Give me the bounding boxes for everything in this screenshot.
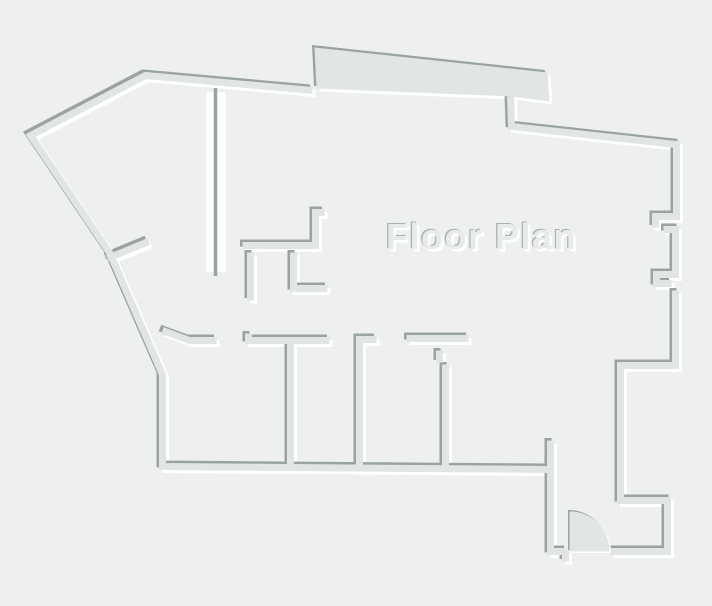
walls-shadow-layer <box>28 45 674 559</box>
floor-plan-canvas: Floor Plan Floor Plan Floor Plan <box>0 0 712 606</box>
floor-plan-title: Floor Plan <box>386 216 577 257</box>
door-swing-body <box>571 513 609 551</box>
